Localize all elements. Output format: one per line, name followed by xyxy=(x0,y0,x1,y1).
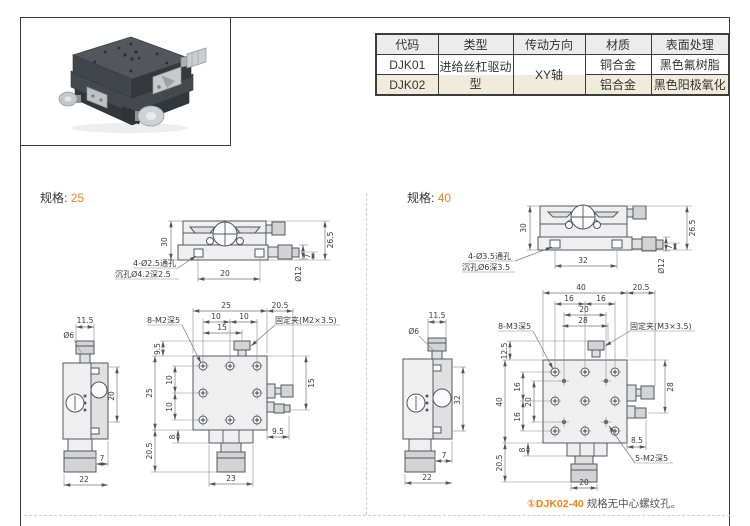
dim-front-w20: 20 xyxy=(198,258,260,282)
dim-text: 7 xyxy=(303,253,312,258)
dim-front-w32: 32 xyxy=(555,249,617,269)
plan-clamp xyxy=(234,341,250,350)
dim-text: 26.5 xyxy=(326,231,335,248)
spec-table: 代码 类型 传动方向 材质 表面处理 DJK01 进给丝杠驱动型 XY轴 铜合金… xyxy=(375,33,730,96)
footnote: ①DJK02-40 规格无中心螺纹孔。 xyxy=(527,496,681,511)
dim-plan-h8: 8 xyxy=(518,443,567,456)
dim-text: 26.5 xyxy=(688,219,697,236)
product-photo xyxy=(35,25,215,137)
dim-plan-h20-5: 20.5 xyxy=(145,430,217,472)
dim-side-w7: 7 xyxy=(435,441,452,463)
side-bearing xyxy=(91,382,107,398)
dim-text: 23 xyxy=(226,474,236,483)
dim-front-h7: 7 xyxy=(663,243,680,250)
dim-text: 7 xyxy=(100,454,105,463)
dim-text: Ø6 xyxy=(63,331,74,340)
dim-plan-h20-5: 20.5 xyxy=(495,443,571,482)
dim-text: 20 xyxy=(579,478,589,487)
front-side-knob xyxy=(642,237,656,251)
dim-plan-h40: 40 xyxy=(495,360,543,443)
cell-material-djk02: 铝合金 xyxy=(585,75,651,96)
dim-side-w22: 22 xyxy=(405,473,452,485)
spec40-plan-view: 40 20.5 16 16 20 28 8-M3深5 xyxy=(495,283,695,491)
dim-text: 15 xyxy=(217,323,227,332)
dim-text: 8 xyxy=(168,434,177,439)
dim-text: 20.5 xyxy=(495,454,504,471)
side-top-knob xyxy=(76,341,94,354)
dim-text: 9.5 xyxy=(153,343,162,355)
cell-finish-djk02: 黑色阳极氧化 xyxy=(651,75,729,96)
side-bottom-knob xyxy=(405,451,435,472)
hole-note-line2: 沉孔Ø6深3.5 xyxy=(462,262,510,272)
side-bottom-knob xyxy=(64,451,96,472)
col-header-code: 代码 xyxy=(376,34,438,55)
spec25-side-view: 11.5 Ø6 20 7 22 xyxy=(63,316,120,487)
dim-text: 10 xyxy=(165,402,174,412)
cell-type: 进给丝杠驱动型 xyxy=(438,55,513,96)
dim-plan-h12-5: 12.5 xyxy=(500,341,588,360)
dim-text: 7 xyxy=(442,451,447,460)
dim-text: 20 xyxy=(220,269,230,278)
dim-plan-h8: 8 xyxy=(168,430,209,443)
dim-text: 16 xyxy=(513,412,522,422)
thread-label-text: 8-M2深5 xyxy=(147,316,180,325)
front-top-knob xyxy=(272,222,285,235)
dim-text: Ø12 xyxy=(294,266,303,282)
plan-clamp-label: 固定夹(M3×3.5) xyxy=(605,321,695,346)
spec40-front-view: 30 32 26.5 7 Ø12 4-Ø3.5通孔 沉孔Ø6 xyxy=(462,205,697,274)
dim-text: 32 xyxy=(578,256,588,265)
dim-text: 20.5 xyxy=(633,283,650,292)
plan-clamp-label: 固定夹(M2×3.5) xyxy=(251,315,340,346)
side-top-knob xyxy=(428,338,446,351)
front-top-knob-shaft xyxy=(266,225,272,233)
dim-front-h30: 30 xyxy=(519,206,540,250)
dim-text: 10 xyxy=(165,375,174,385)
dim-text: 8.5 xyxy=(631,436,643,445)
dim-text: 16 xyxy=(513,382,522,392)
dim-text: 15 xyxy=(307,378,316,388)
dim-plan-w20-5: 20.5 xyxy=(627,283,655,386)
dim-text: 40 xyxy=(495,397,504,407)
plan-right-knobs xyxy=(267,384,293,413)
hole-note-line1: 4-Ø3.5通孔 xyxy=(468,251,511,261)
hole-note-line2: 沉孔Ø4.2深2.5 xyxy=(115,269,171,279)
cell-finish-djk01: 黑色氟树脂 xyxy=(651,55,729,75)
dim-side-w11-5: 11.5 xyxy=(76,316,94,341)
col-header-material: 材质 xyxy=(585,34,651,55)
dim-text: 30 xyxy=(519,223,528,233)
dim-text: 28 xyxy=(578,316,588,325)
dim-text: 11.5 xyxy=(429,311,446,320)
dim-text: 25 xyxy=(221,301,231,310)
clamp-label-text: 固定夹(M2×3.5) xyxy=(275,315,337,325)
footnote-marker: ① xyxy=(527,498,536,510)
spec40-side-view: 11.5 Ø6 32 7 22 xyxy=(403,311,466,485)
spec40-drawing: 30 32 26.5 7 Ø12 4-Ø3.5通孔 沉孔Ø6 xyxy=(372,195,728,515)
dim-text: 16 xyxy=(564,294,574,303)
dim-side-w7: 7 xyxy=(96,441,108,466)
dim-text: 32 xyxy=(453,395,462,405)
dim-plan-w20-5: 20.5 xyxy=(267,301,293,385)
dim-plan-w10-10: 10 10 xyxy=(203,312,257,360)
dim-side-h32: 32 xyxy=(452,367,466,431)
dim-text: 28 xyxy=(666,382,675,392)
dim-text: 12.5 xyxy=(500,342,509,359)
dim-text: 22 xyxy=(79,475,89,484)
footnote-code: DJK02-40 xyxy=(536,498,584,510)
front-side-knob xyxy=(278,245,292,259)
dim-text: 40 xyxy=(576,283,586,292)
top-right-knob xyxy=(181,48,206,68)
dim-side-w22: 22 xyxy=(64,474,108,487)
dim-text: 20.5 xyxy=(272,301,289,310)
dim-text: 9.5 xyxy=(272,427,284,436)
dim-text: 20.5 xyxy=(145,442,154,459)
dim-side-h20: 20 xyxy=(107,367,120,422)
cell-code-djk02: DJK02 xyxy=(376,75,438,96)
vertical-dashed-divider xyxy=(366,193,367,515)
dim-text: 22 xyxy=(422,473,432,482)
spec25-drawing: 30 20 26.5 7 Ø12 4-Ø2.5通孔 沉孔Ø4 xyxy=(22,200,366,515)
dim-text: 11.5 xyxy=(77,316,94,325)
spec25-plan-view: 25 20.5 10 10 15 8-M2深5 固定夹(M2×3.5) xyxy=(145,301,340,487)
dim-text: 10 xyxy=(211,312,221,321)
center-label-text: 5-M2深5 xyxy=(635,454,668,463)
front-top-knob-shaft xyxy=(627,209,633,217)
cell-direction: XY轴 xyxy=(513,55,585,96)
cell-code-djk01: DJK01 xyxy=(376,55,438,75)
dim-text: 20 xyxy=(579,305,589,314)
spec25-front-view: 30 20 26.5 7 Ø12 4-Ø2.5通孔 沉孔Ø4 xyxy=(115,221,335,282)
bottom-dashed-divider xyxy=(24,515,730,516)
dim-text: Ø6 xyxy=(408,327,419,336)
col-header-type: 类型 xyxy=(438,34,513,55)
thread-label-text: 8-M3深5 xyxy=(498,322,531,331)
footnote-text: 规格无中心螺纹孔。 xyxy=(587,498,682,510)
plan-bottom-knob xyxy=(217,452,245,472)
plan-bottom-block xyxy=(567,443,607,456)
dim-text: 20 xyxy=(524,397,533,407)
dim-plan-b9-5: 9.5 xyxy=(267,416,289,440)
dim-text: 10 xyxy=(239,312,249,321)
dim-text: 16 xyxy=(596,294,606,303)
dim-text: 8 xyxy=(518,447,527,452)
table-header-row: 代码 类型 传动方向 材质 表面处理 xyxy=(376,34,729,55)
table-row-djk01: DJK01 进给丝杠驱动型 XY轴 铜合金 黑色氟树脂 xyxy=(376,55,729,75)
hole-note-line1: 4-Ø2.5通孔 xyxy=(133,258,176,268)
dim-plan-w15: 15 xyxy=(203,323,242,341)
plan-clamp xyxy=(588,341,604,350)
col-header-finish: 表面处理 xyxy=(651,34,729,55)
col-header-direction: 传动方向 xyxy=(513,34,585,55)
dim-side-w11-5: 11.5 xyxy=(428,311,446,338)
plan-bottom-block xyxy=(209,430,253,443)
cell-material-djk01: 铜合金 xyxy=(585,55,651,75)
dim-text: 25 xyxy=(145,388,154,398)
side-bearing xyxy=(433,389,451,407)
dim-text: Ø12 xyxy=(657,258,666,274)
clamp-label-text: 固定夹(M3×3.5) xyxy=(630,321,692,331)
front-top-knob xyxy=(633,206,646,219)
product-photo-cell xyxy=(20,17,231,146)
dim-plan-r8-5: 8.5 xyxy=(627,420,646,450)
dim-text: 20 xyxy=(107,391,116,401)
dim-text: 30 xyxy=(160,237,169,247)
front-hole-note: 4-Ø3.5通孔 沉孔Ø6深3.5 xyxy=(462,247,552,272)
